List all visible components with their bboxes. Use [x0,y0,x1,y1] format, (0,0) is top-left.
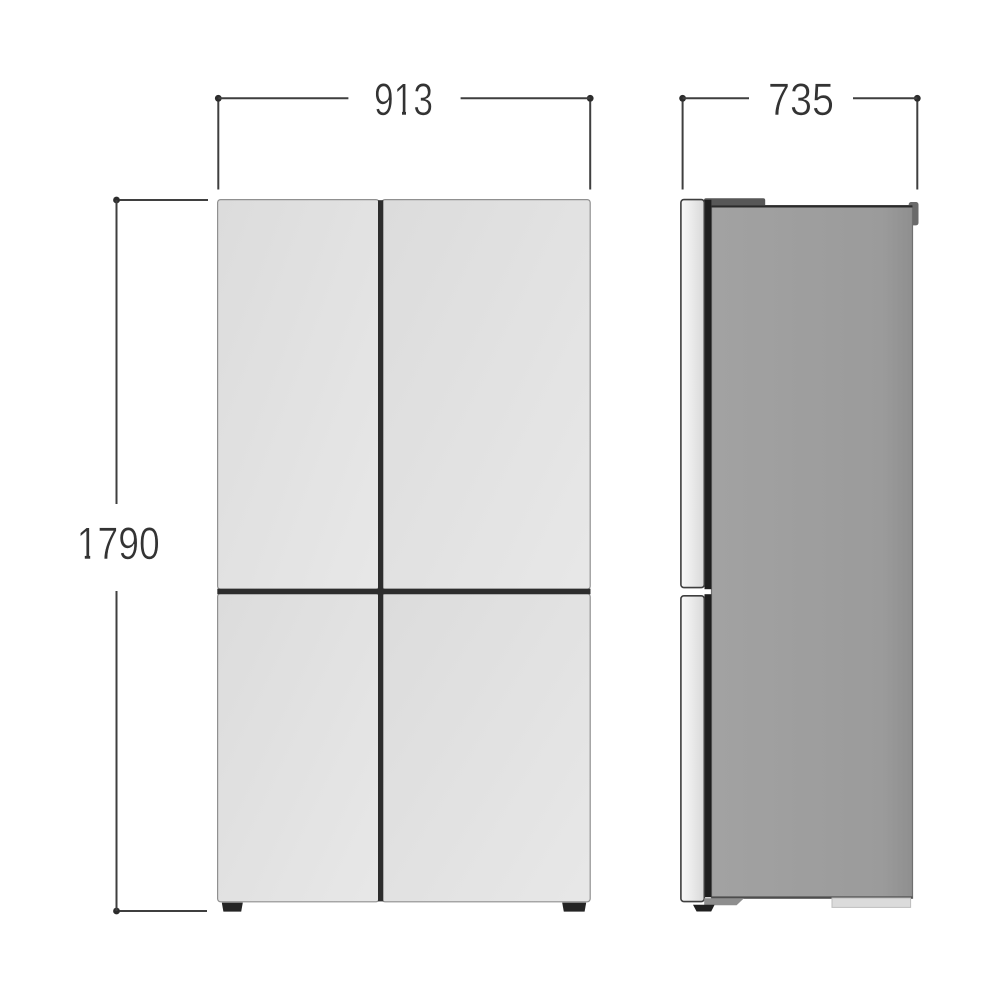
svg-text:735: 735 [768,74,834,125]
svg-text:913: 913 [374,74,433,125]
svg-text:1790: 1790 [77,518,160,569]
